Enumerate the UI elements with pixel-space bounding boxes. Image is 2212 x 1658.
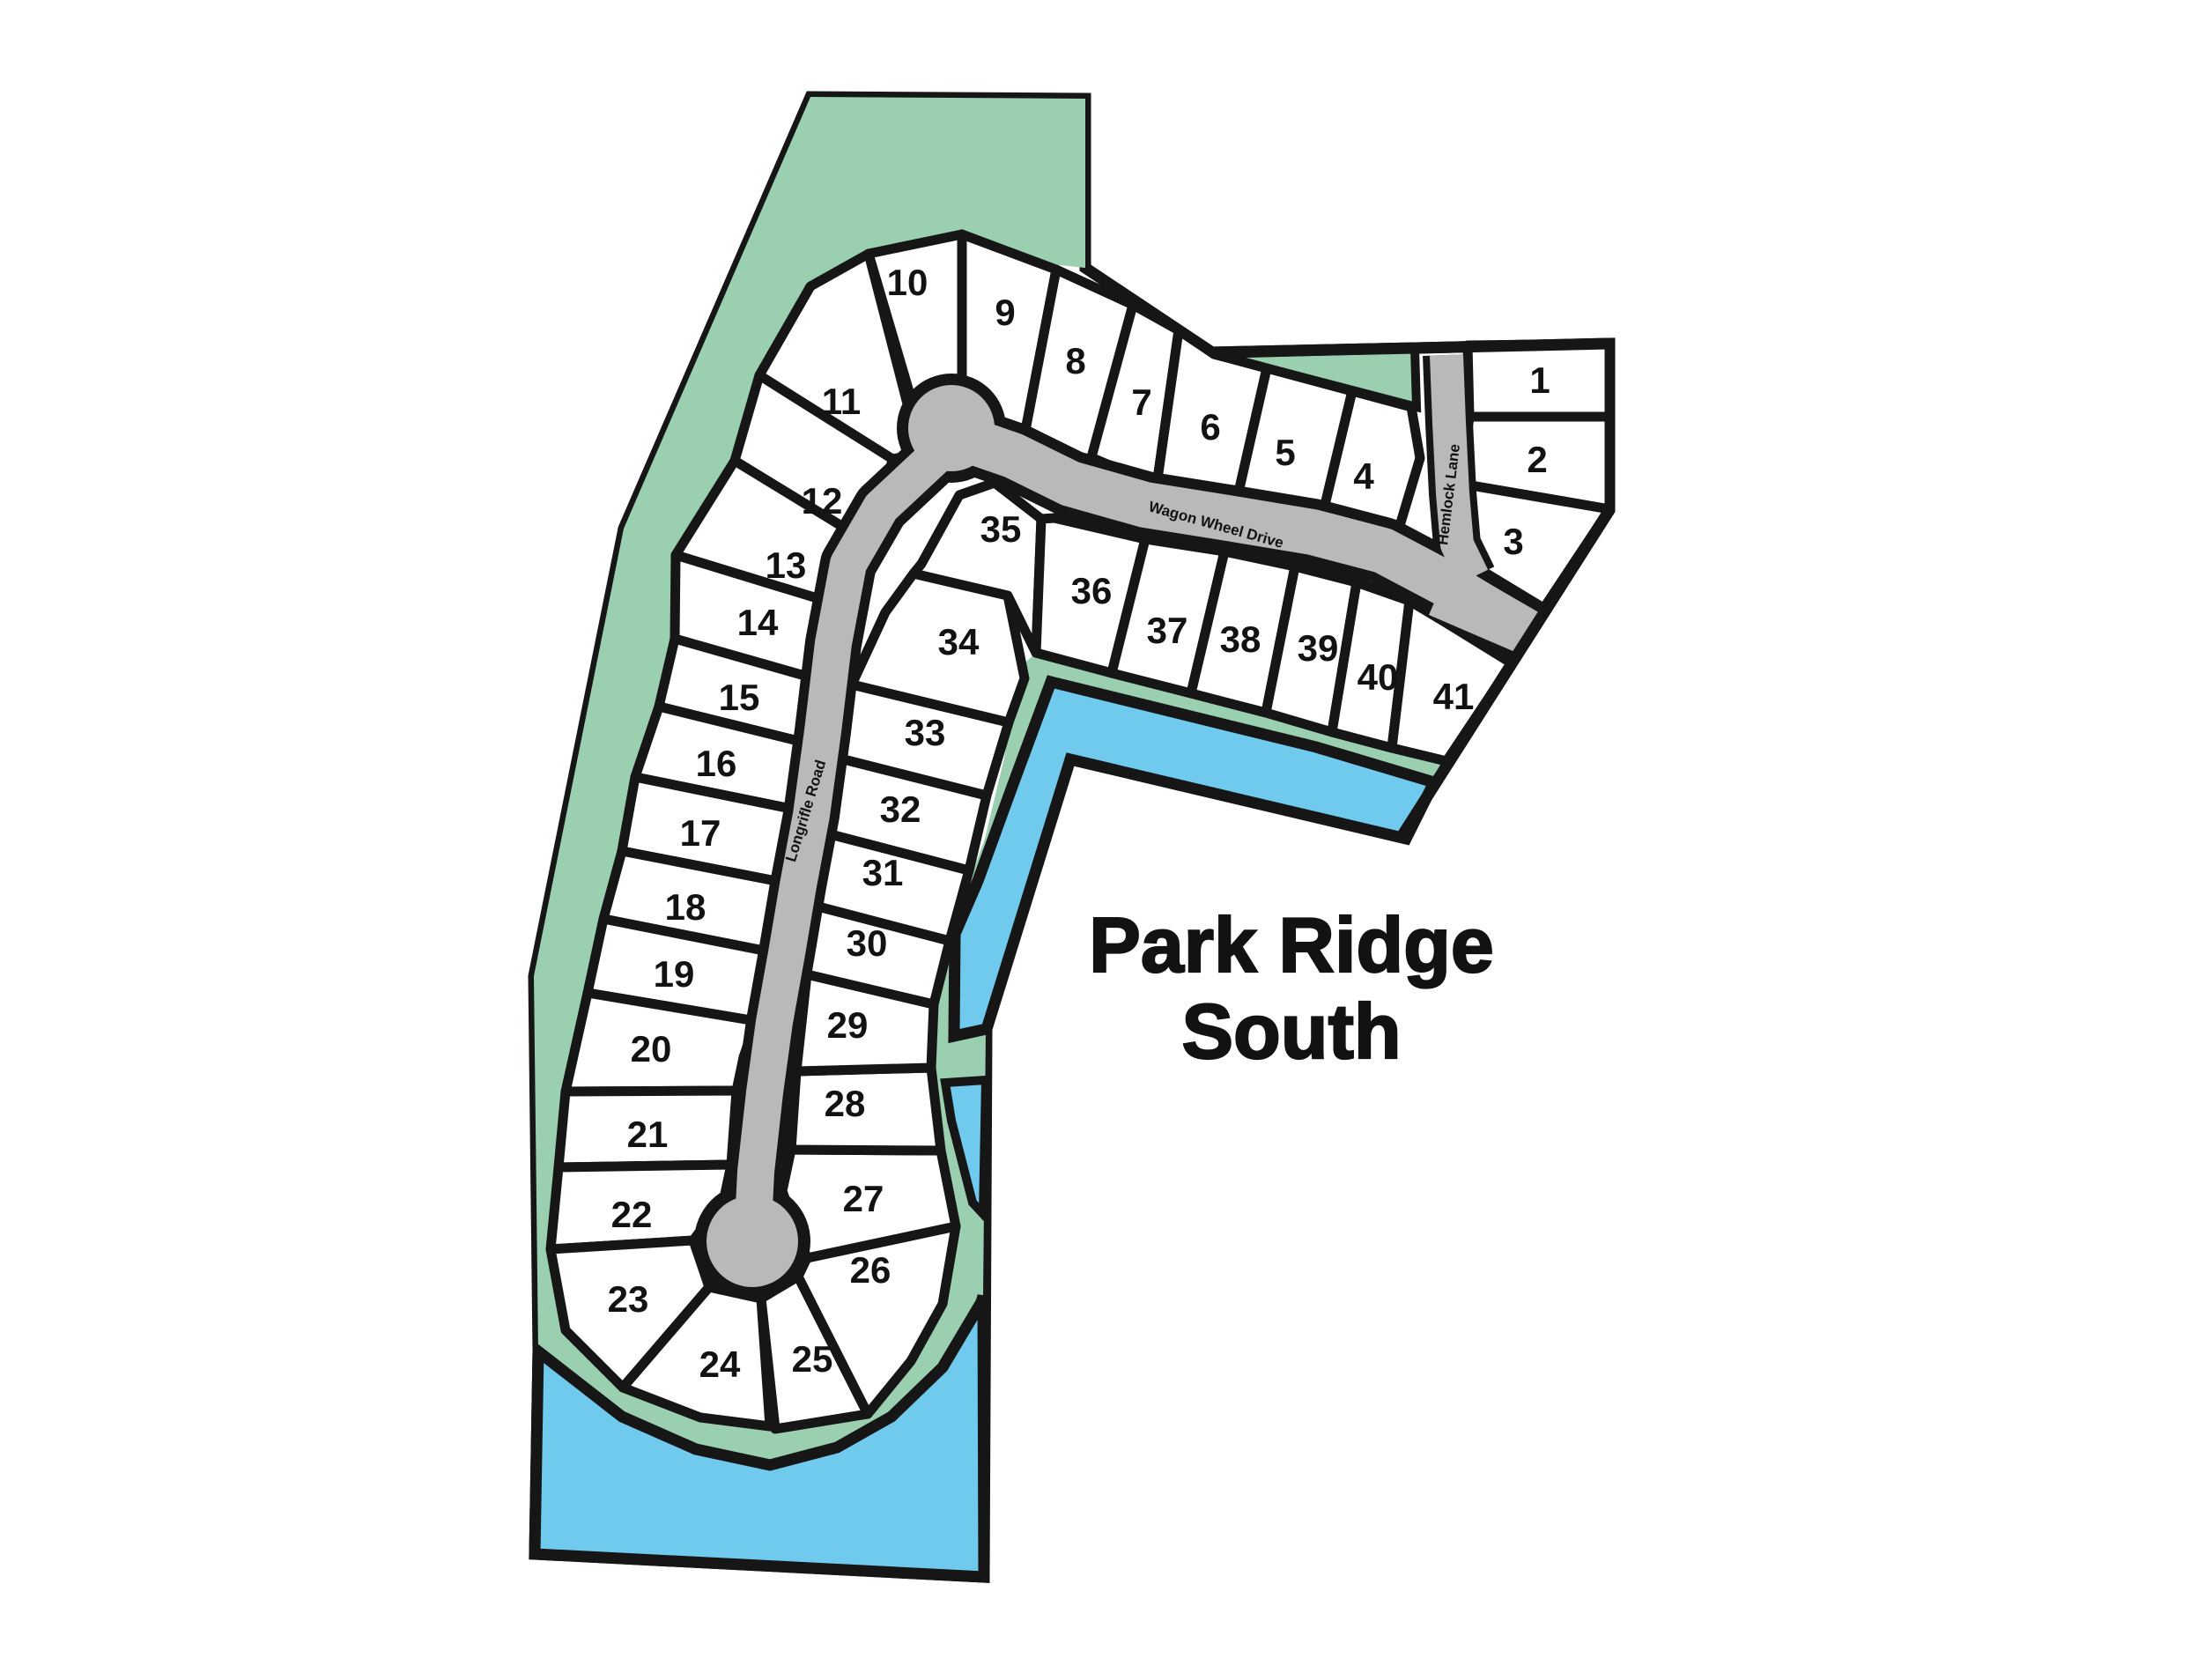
svg-text:29: 29	[827, 1004, 869, 1046]
svg-text:26: 26	[850, 1249, 891, 1291]
svg-text:20: 20	[631, 1028, 672, 1070]
svg-text:35: 35	[980, 508, 1022, 550]
svg-text:19: 19	[654, 953, 695, 995]
svg-text:31: 31	[862, 852, 904, 893]
svg-text:7: 7	[1131, 381, 1151, 423]
svg-text:25: 25	[792, 1338, 833, 1380]
svg-text:22: 22	[611, 1194, 653, 1235]
svg-text:South: South	[1181, 988, 1401, 1075]
svg-text:13: 13	[766, 544, 807, 586]
svg-text:16: 16	[696, 743, 737, 784]
svg-text:10: 10	[887, 262, 928, 303]
svg-text:9: 9	[995, 292, 1015, 333]
svg-text:41: 41	[1433, 676, 1475, 717]
svg-text:18: 18	[665, 886, 707, 928]
svg-text:Park Ridge: Park Ridge	[1089, 901, 1494, 988]
svg-text:36: 36	[1071, 570, 1113, 611]
svg-text:37: 37	[1147, 610, 1188, 651]
svg-text:2: 2	[1527, 439, 1547, 480]
svg-text:12: 12	[802, 480, 843, 522]
svg-text:38: 38	[1220, 618, 1261, 660]
svg-text:21: 21	[627, 1114, 669, 1155]
svg-text:40: 40	[1358, 656, 1399, 698]
svg-text:11: 11	[822, 381, 861, 422]
svg-text:8: 8	[1065, 340, 1085, 381]
svg-text:33: 33	[905, 712, 946, 753]
svg-text:28: 28	[825, 1083, 866, 1124]
svg-text:27: 27	[843, 1178, 884, 1219]
svg-text:34: 34	[938, 621, 980, 662]
svg-text:4: 4	[1353, 455, 1374, 497]
svg-text:39: 39	[1298, 627, 1339, 669]
svg-text:15: 15	[719, 677, 760, 718]
svg-text:1: 1	[1529, 359, 1550, 401]
svg-text:24: 24	[699, 1343, 741, 1385]
svg-text:5: 5	[1275, 432, 1295, 473]
svg-text:17: 17	[680, 812, 721, 854]
svg-text:3: 3	[1503, 521, 1523, 562]
svg-text:23: 23	[608, 1278, 649, 1320]
svg-text:30: 30	[847, 922, 888, 964]
svg-text:6: 6	[1200, 406, 1220, 448]
svg-text:32: 32	[880, 788, 921, 830]
svg-text:14: 14	[737, 602, 779, 643]
